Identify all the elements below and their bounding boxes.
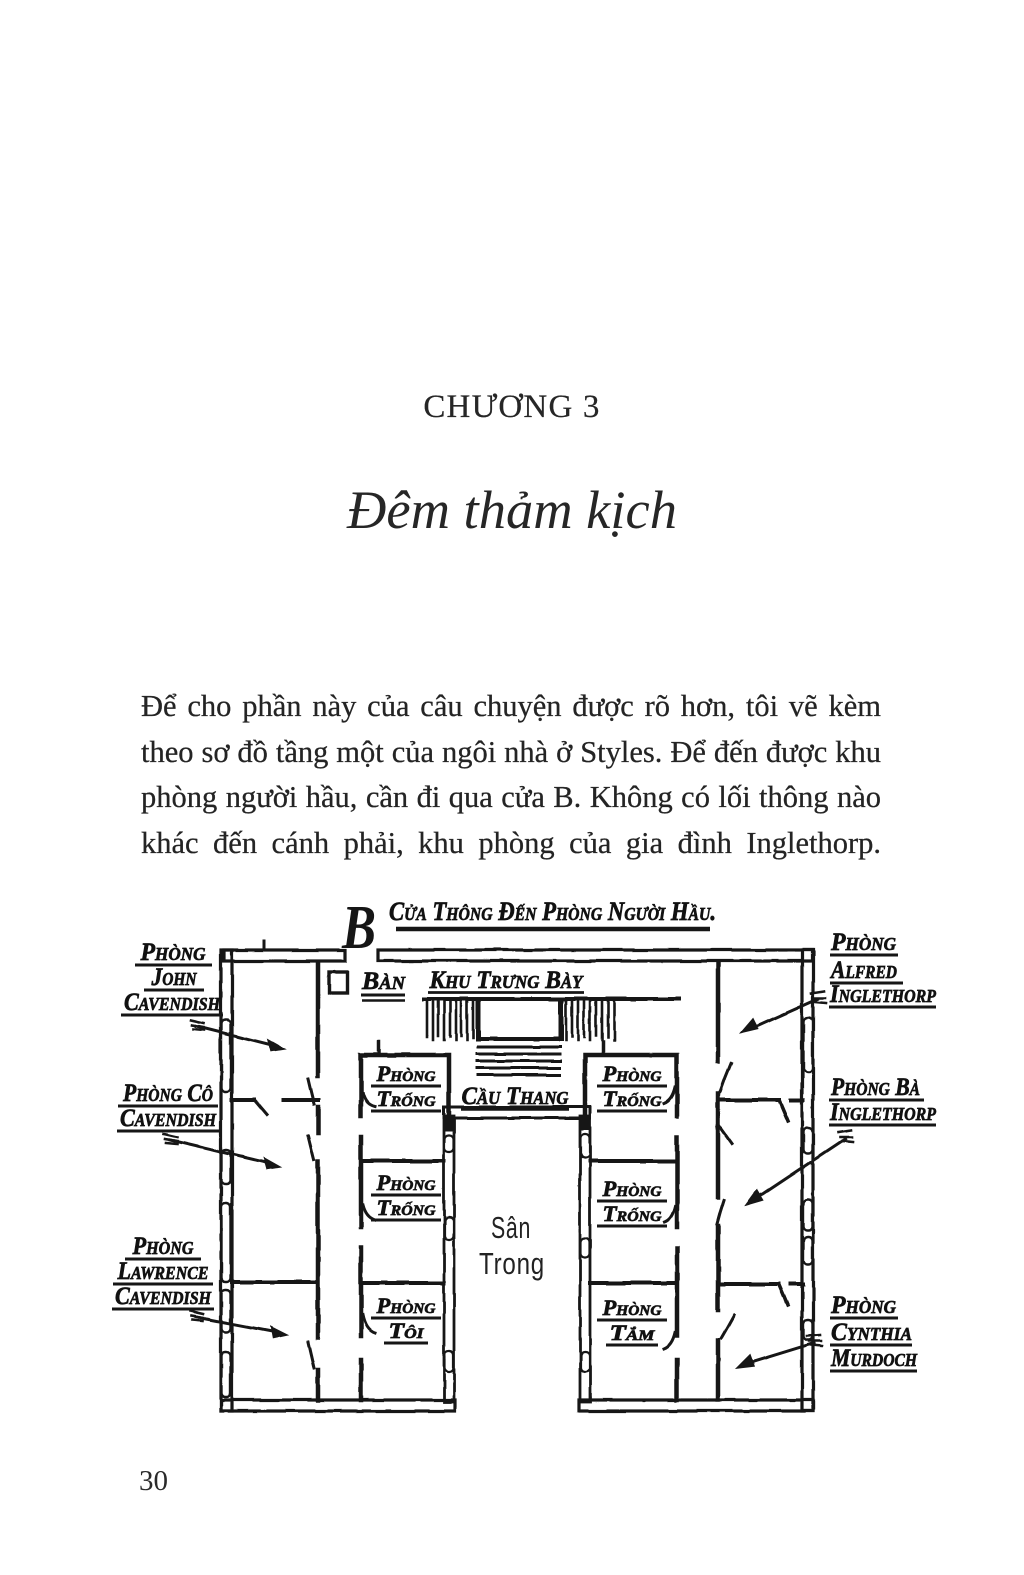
svg-text:Trống: Trống: [377, 1086, 436, 1111]
svg-text:Phòng Cô: Phòng Cô: [122, 1080, 213, 1107]
svg-text:Phòng: Phòng: [132, 1233, 194, 1260]
svg-text:Phòng: Phòng: [601, 1061, 661, 1086]
svg-text:Alfred: Alfred: [829, 957, 897, 984]
svg-text:Phòng: Phòng: [830, 1292, 896, 1319]
svg-text:Trống: Trống: [603, 1086, 662, 1111]
svg-text:B: B: [341, 894, 376, 962]
svg-text:Inglethorp: Inglethorp: [829, 981, 937, 1008]
svg-text:Khu Trưng Bày: Khu Trưng Bày: [429, 967, 585, 994]
svg-text:Lawrence: Lawrence: [117, 1258, 209, 1285]
svg-text:Phòng: Phòng: [375, 1293, 435, 1318]
svg-text:Cửa Thông Đến Phòng Người Hầu.: Cửa Thông Đến Phòng Người Hầu.: [389, 897, 716, 926]
svg-text:Trong: Trong: [479, 1246, 545, 1281]
svg-text:Phòng: Phòng: [140, 939, 206, 966]
svg-text:Cynthia: Cynthia: [831, 1319, 912, 1346]
svg-text:Phòng: Phòng: [375, 1170, 435, 1195]
svg-text:Murdoch: Murdoch: [830, 1345, 918, 1372]
svg-text:Phòng: Phòng: [601, 1176, 661, 1201]
svg-text:Phòng: Phòng: [830, 929, 896, 956]
svg-text:Cavendish: Cavendish: [124, 989, 221, 1016]
svg-text:Cavendish: Cavendish: [120, 1105, 217, 1132]
svg-text:Trống: Trống: [377, 1195, 436, 1220]
svg-text:Cavendish: Cavendish: [115, 1283, 212, 1310]
svg-text:Trống: Trống: [603, 1201, 662, 1226]
svg-text:Cầu Thang: Cầu Thang: [462, 1083, 569, 1110]
svg-text:Phòng: Phòng: [601, 1295, 661, 1320]
svg-text:John: John: [151, 964, 198, 991]
svg-text:Sân: Sân: [491, 1210, 531, 1245]
svg-text:Tôi: Tôi: [389, 1318, 425, 1343]
svg-text:Bàn: Bàn: [361, 968, 406, 995]
svg-text:Phòng: Phòng: [375, 1061, 435, 1086]
svg-text:Inglethorp: Inglethorp: [829, 1099, 937, 1126]
svg-text:Phòng Bà: Phòng Bà: [830, 1074, 920, 1101]
svg-text:Tắm: Tắm: [610, 1320, 656, 1345]
